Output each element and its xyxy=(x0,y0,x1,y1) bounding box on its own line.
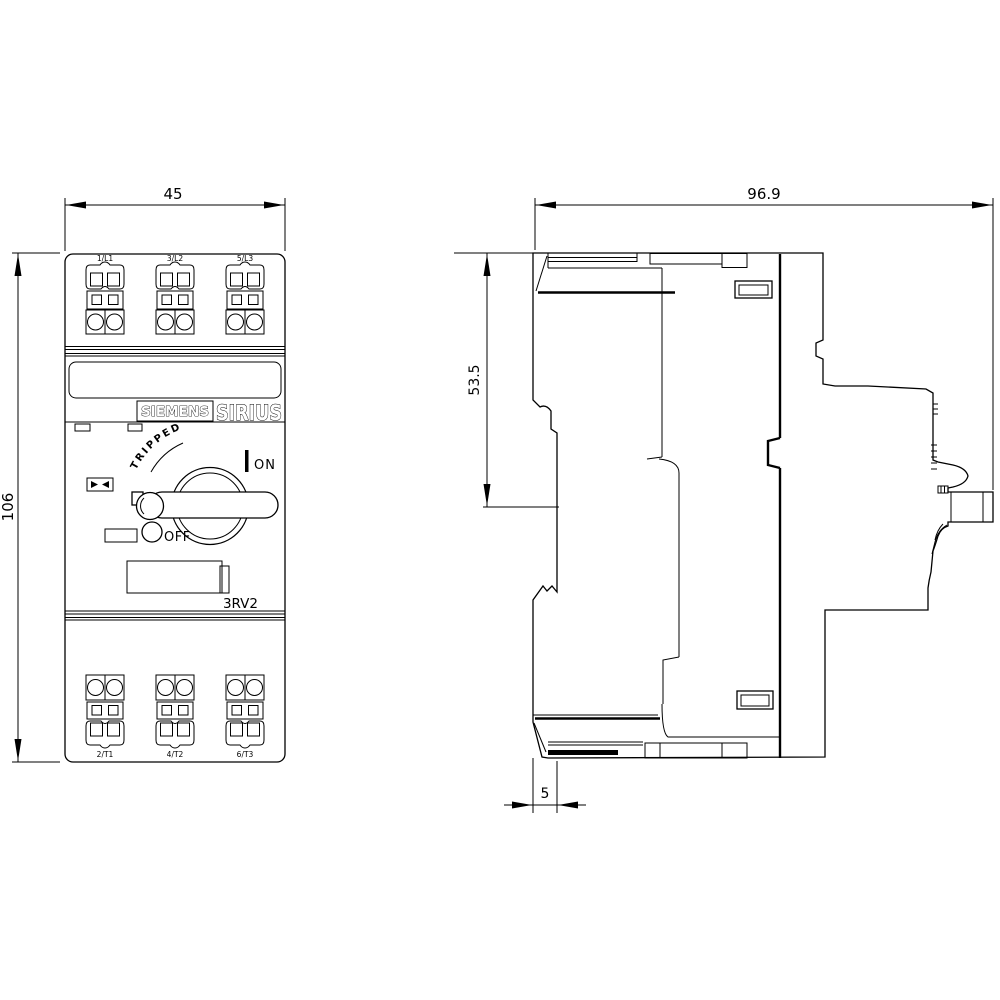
dim-upper-height-value: 53.5 xyxy=(467,364,483,395)
rating-label-field xyxy=(127,561,222,593)
rating-label-tab xyxy=(220,566,229,593)
drawing-svg: 1/L1 3/L2 5/L3 SIEMENS SIRIUS TRIPPED xyxy=(0,0,1000,1000)
off-label: OFF xyxy=(164,530,191,545)
terminal-pole xyxy=(156,675,194,748)
dim-rail-offset-value: 5 xyxy=(541,786,550,802)
front-view: 1/L1 3/L2 5/L3 SIEMENS SIRIUS TRIPPED xyxy=(65,254,285,762)
terminal-pole xyxy=(226,262,264,334)
terminal-label: 5/L3 xyxy=(237,254,253,263)
on-bar-icon xyxy=(245,450,249,472)
terminal-pole xyxy=(226,675,264,748)
dim-side-rail-offset: 5 xyxy=(504,758,586,813)
rotary-lever-handle[interactable] xyxy=(149,492,278,518)
side-view xyxy=(533,253,993,758)
on-label: ON xyxy=(254,458,276,473)
dim-depth-value: 96.9 xyxy=(747,185,780,203)
switch-plate: TRIPPED ON xyxy=(75,421,278,612)
reset-window xyxy=(105,529,137,542)
family-logo: SIRIUS xyxy=(216,401,282,425)
off-circle-icon xyxy=(142,522,162,542)
side-inner-lines xyxy=(647,254,780,738)
dim-side-depth: 96.9 xyxy=(535,185,993,490)
vent-window-top xyxy=(735,281,772,298)
on-marking: ON xyxy=(245,450,276,473)
terminal-label: 1/L1 xyxy=(97,254,113,263)
terminal-pole xyxy=(86,262,124,334)
terminal-label: 3/L2 xyxy=(167,254,183,263)
terminal-label: 6/T3 xyxy=(237,750,254,759)
side-body-outline xyxy=(533,253,993,758)
terminal-pole xyxy=(156,262,194,334)
side-knob-shaft xyxy=(931,404,983,554)
dim-width-value: 45 xyxy=(163,185,182,203)
brand-row: SIEMENS SIRIUS xyxy=(137,401,282,425)
terminal-label: 2/T1 xyxy=(97,750,114,759)
side-bottom-details xyxy=(533,704,780,758)
side-top-details xyxy=(536,253,747,293)
terminal-pole xyxy=(86,675,124,748)
technical-drawing-page: 1/L1 3/L2 5/L3 SIEMENS SIRIUS TRIPPED xyxy=(0,0,1000,1000)
series-label: 3RV2 xyxy=(223,596,258,612)
dim-side-upper-height: 53.5 xyxy=(454,253,559,507)
top-terminals: 1/L1 3/L2 5/L3 xyxy=(86,254,264,334)
indicator-window xyxy=(128,424,142,431)
indicator-window xyxy=(75,424,90,431)
dim-front-width: 45 xyxy=(65,185,285,251)
dim-front-height: 106 xyxy=(0,253,60,762)
trip-indicator-icon xyxy=(87,478,113,491)
bottom-terminals: 2/T1 4/T2 6/T3 xyxy=(86,675,264,759)
front-separators xyxy=(65,347,285,621)
vent-window-bottom xyxy=(737,691,773,709)
dim-height-value: 106 xyxy=(0,493,17,522)
terminal-label: 4/T2 xyxy=(167,750,184,759)
brand-logo: SIEMENS xyxy=(141,405,209,420)
